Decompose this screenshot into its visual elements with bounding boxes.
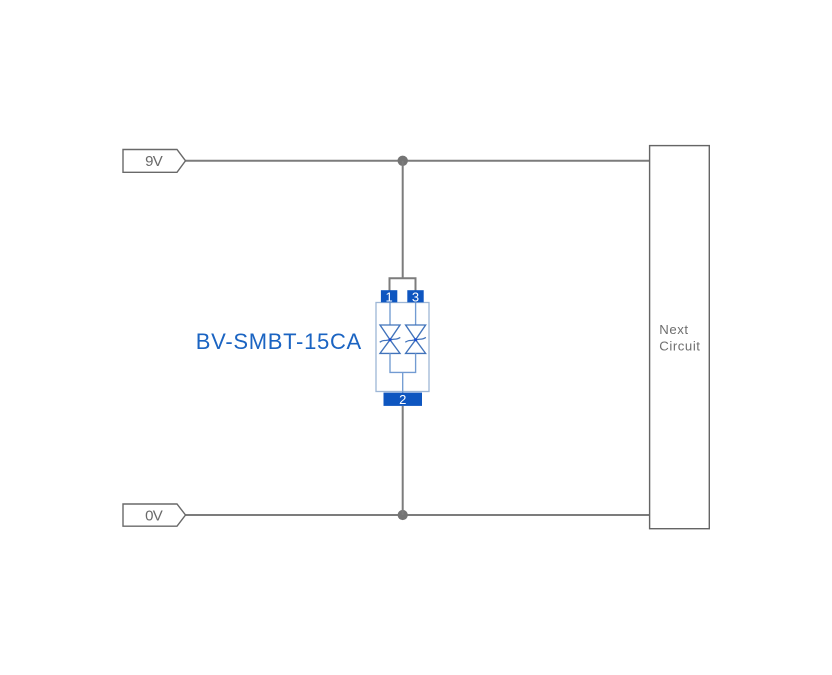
svg-text:3: 3 bbox=[412, 290, 419, 305]
svg-text:1: 1 bbox=[385, 290, 392, 305]
svg-text:2: 2 bbox=[399, 392, 406, 407]
svg-text:BV-SMBT-15CA: BV-SMBT-15CA bbox=[196, 329, 362, 354]
svg-text:Circuit: Circuit bbox=[659, 339, 700, 354]
svg-text:0V: 0V bbox=[145, 507, 163, 524]
svg-text:9V: 9V bbox=[145, 153, 163, 170]
svg-text:Next: Next bbox=[659, 322, 688, 337]
